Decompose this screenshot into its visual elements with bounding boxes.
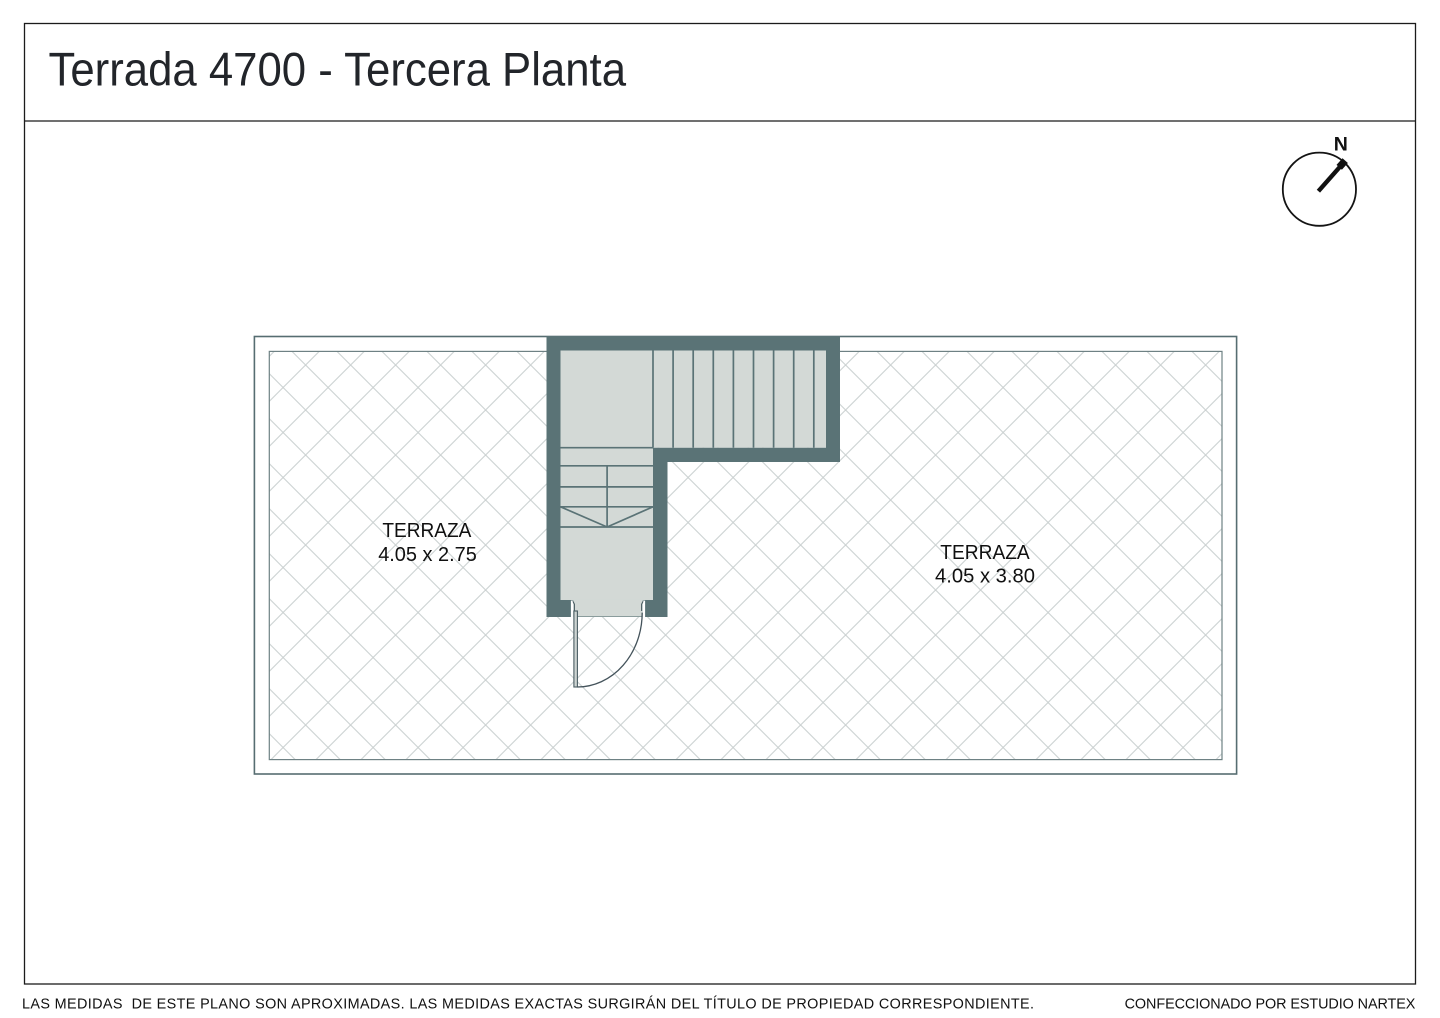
svg-text:Terrada 4700 - Tercera Planta: Terrada 4700 - Tercera Planta bbox=[49, 43, 627, 96]
svg-text:CONFECCIONADO POR ESTUDIO NART: CONFECCIONADO POR ESTUDIO NARTEX bbox=[1125, 997, 1416, 1013]
svg-text:4.05 x 3.80: 4.05 x 3.80 bbox=[935, 565, 1035, 587]
svg-text:TERRAZA: TERRAZA bbox=[382, 520, 472, 542]
svg-text:LAS MEDIDAS DE ESTE PLANO SON: LAS MEDIDAS DE ESTE PLANO SON APROXIMADA… bbox=[22, 996, 1034, 1013]
svg-text:4.05 x 2.75: 4.05 x 2.75 bbox=[378, 544, 477, 566]
svg-text:N: N bbox=[1334, 134, 1348, 156]
svg-text:TERRAZA: TERRAZA bbox=[940, 542, 1030, 564]
